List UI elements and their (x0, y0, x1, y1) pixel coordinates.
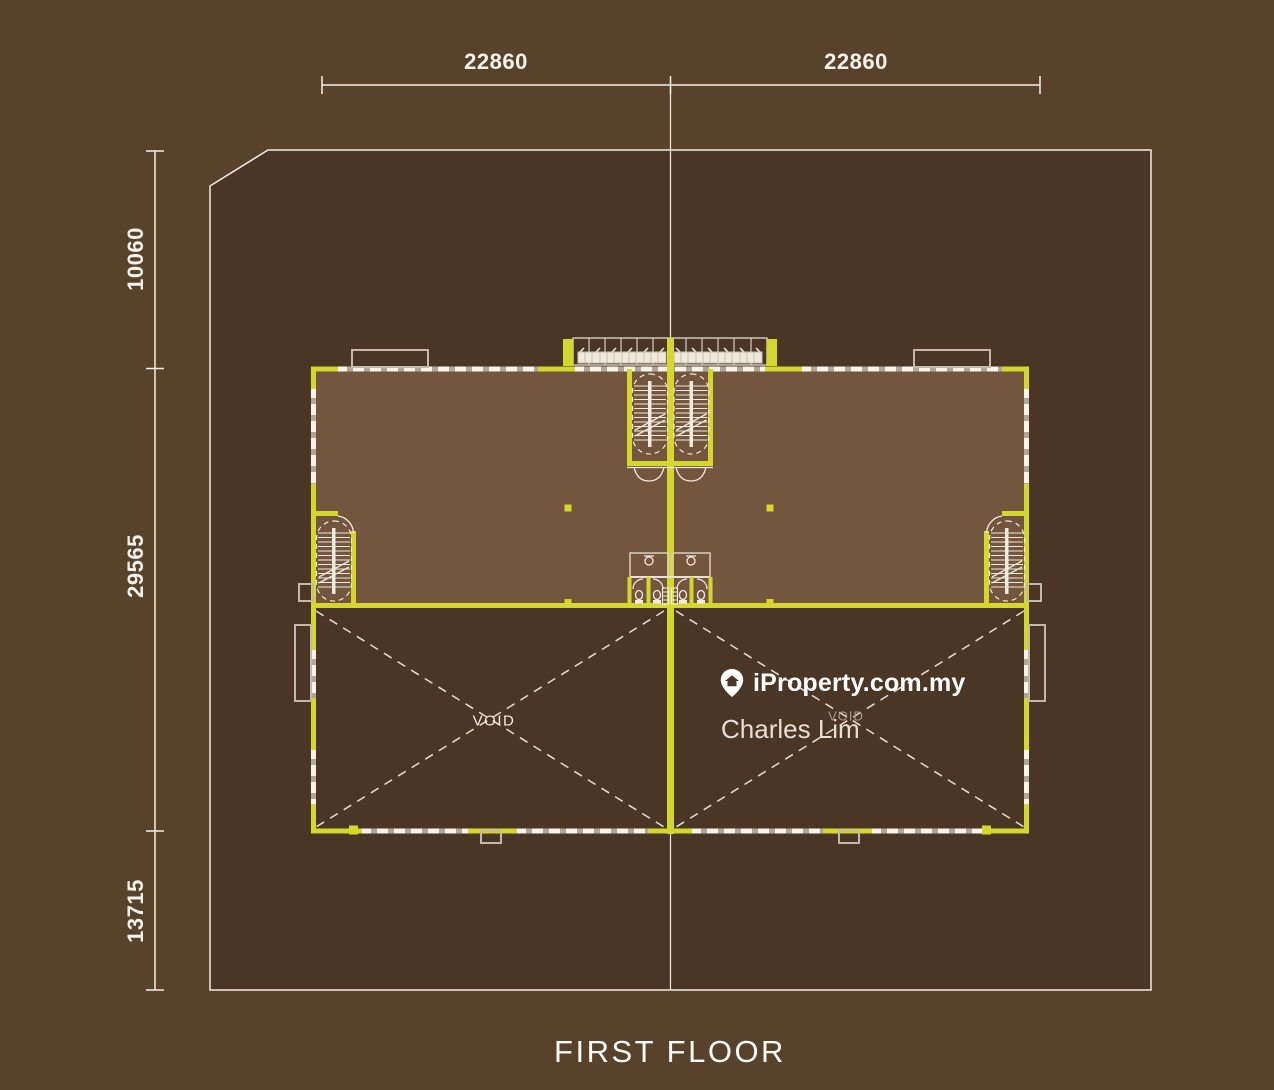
watermark: iProperty.com.my (719, 668, 966, 698)
location-pin-icon (719, 668, 745, 698)
floor-plan-image: 22860 22860 10060 29565 13715 VOID VOID … (0, 0, 1274, 1090)
floor-title: FIRST FLOOR (554, 1034, 786, 1070)
dimension-top-right: 22860 (824, 49, 888, 75)
dimension-side-bottom: 13715 (123, 879, 149, 943)
dimension-side-middle: 29565 (123, 534, 149, 598)
void-label-left: VOID (473, 713, 516, 730)
dimension-top-left: 22860 (464, 49, 528, 75)
watermark-brand: iProperty.com.my (753, 669, 966, 698)
watermark-agent: Charles Lim (721, 714, 860, 745)
floor-plan-drawing (0, 0, 1274, 1090)
dimension-side-top: 10060 (123, 227, 149, 291)
